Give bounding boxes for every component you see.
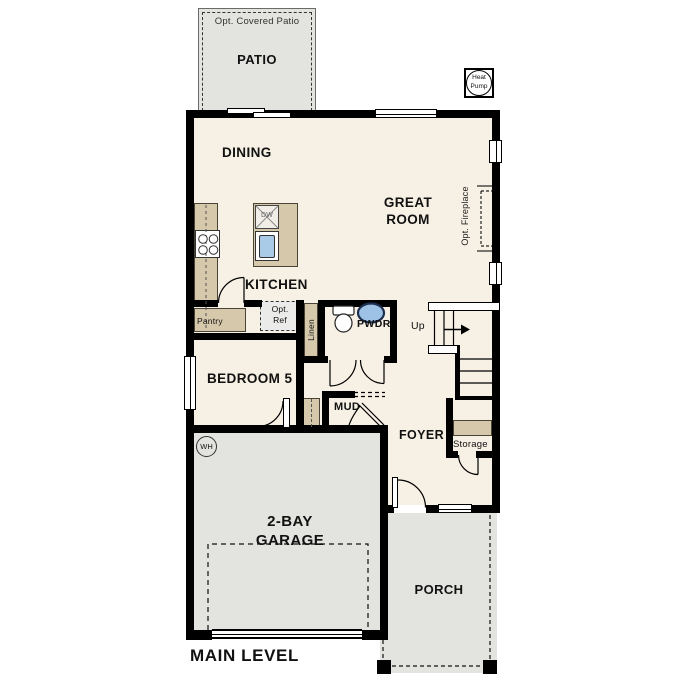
sliding-patio-door <box>253 112 291 118</box>
floor-plan: Heat Pump WH Opt. Covered Patio PATIO DI… <box>0 0 687 687</box>
window <box>375 109 437 118</box>
wall <box>318 300 325 363</box>
window <box>438 504 472 513</box>
door-opening <box>458 451 476 458</box>
water-heater-icon: WH <box>196 436 217 457</box>
door-opening <box>218 300 244 307</box>
opt-ref-label: Opt. Ref <box>267 304 293 325</box>
window <box>184 356 196 410</box>
water-heater-label: WH <box>200 442 213 451</box>
wall <box>194 300 218 307</box>
wall <box>186 630 212 640</box>
wall <box>476 451 492 458</box>
storage-shelf <box>453 420 492 436</box>
closet-door-leaf <box>283 398 290 428</box>
heat-pump-label: Heat Pump <box>466 73 492 91</box>
wall <box>194 333 296 340</box>
wall <box>384 356 397 363</box>
pantry-label: Pantry <box>197 316 223 326</box>
garage-door <box>212 629 362 639</box>
bedroom-closet <box>303 398 320 428</box>
stair-landing <box>428 302 500 311</box>
linen-label: Linen <box>306 308 316 352</box>
wall <box>322 391 355 398</box>
mud-label: MUD <box>334 401 360 413</box>
porch-label: PORCH <box>415 582 464 597</box>
front-door-leaf <box>392 477 398 508</box>
wall <box>296 356 328 363</box>
opt-covered-patio-label: Opt. Covered Patio <box>215 16 299 27</box>
porch-post <box>377 660 391 674</box>
wall <box>318 300 397 307</box>
foyer-label: FOYER <box>399 428 444 442</box>
dw-label: DW <box>259 212 275 219</box>
front-door-opening <box>394 505 426 513</box>
heat-pump-icon: Heat Pump <box>464 68 494 98</box>
bedroom5-label: BEDROOM 5 <box>207 371 292 386</box>
up-label: Up <box>411 320 425 332</box>
window <box>489 262 502 285</box>
pwdr-label: PWDR <box>357 318 391 330</box>
garage-label: 2-BAY GARAGE <box>240 513 340 551</box>
wall <box>492 110 500 513</box>
great-room-label: GREAT ROOM <box>375 195 441 229</box>
wall <box>455 396 492 400</box>
wall <box>362 630 388 640</box>
storage-label: Storage <box>453 439 488 450</box>
window <box>489 140 502 163</box>
wall <box>380 425 388 640</box>
door-opening <box>328 356 384 363</box>
wall <box>390 300 397 363</box>
main-level-title: MAIN LEVEL <box>190 646 299 666</box>
kitchen-sink <box>255 231 279 261</box>
kitchen-label: KITCHEN <box>245 277 308 292</box>
mud-opening <box>355 391 384 398</box>
wall <box>296 300 304 433</box>
wall <box>244 300 262 307</box>
dining-label: DINING <box>222 145 272 160</box>
range <box>195 230 220 258</box>
stair-landing <box>428 345 458 354</box>
porch-post <box>483 660 497 674</box>
wall <box>446 398 453 458</box>
patio-label: PATIO <box>237 52 277 67</box>
opt-fireplace-label: Opt. Fireplace <box>460 178 470 254</box>
